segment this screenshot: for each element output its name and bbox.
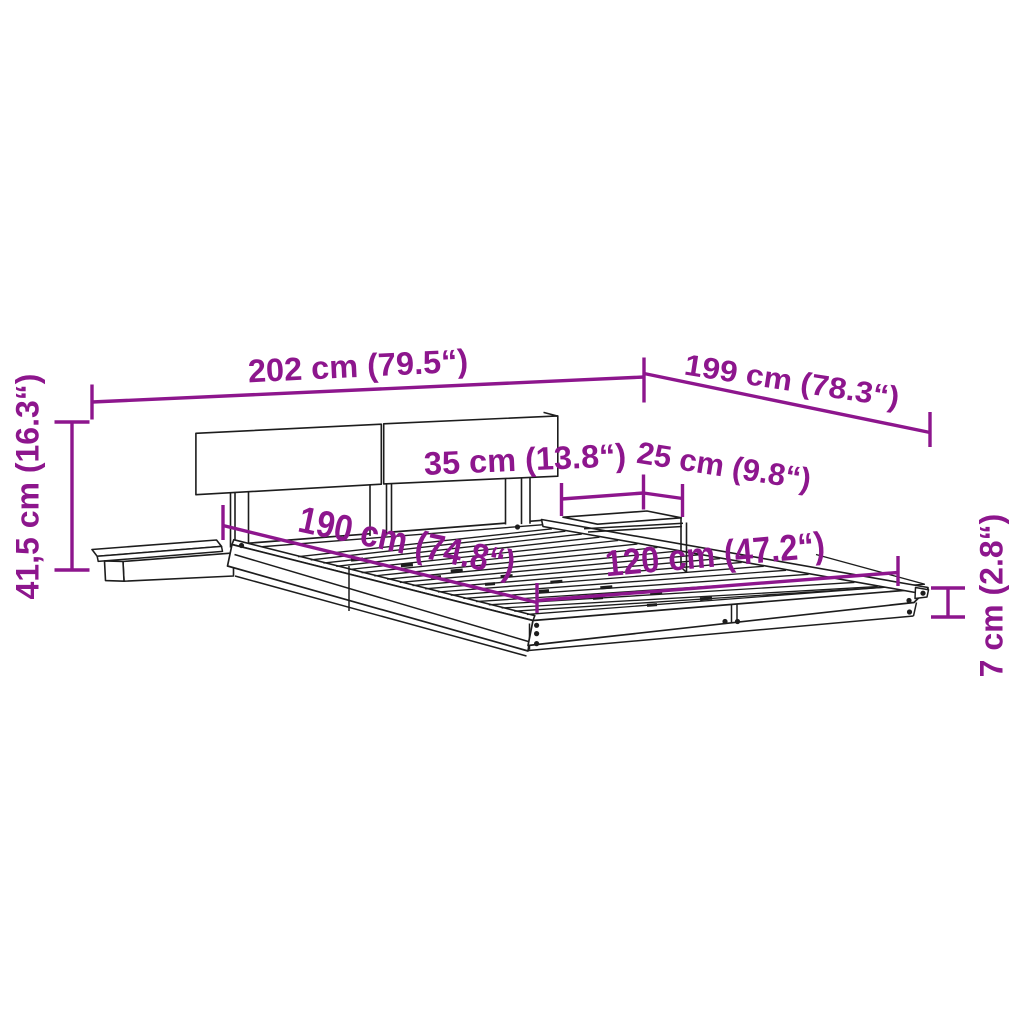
svg-text:7 cm (2.8“): 7 cm (2.8“) <box>974 514 1010 678</box>
svg-text:41,5 cm (16.3“): 41,5 cm (16.3“) <box>10 374 46 600</box>
